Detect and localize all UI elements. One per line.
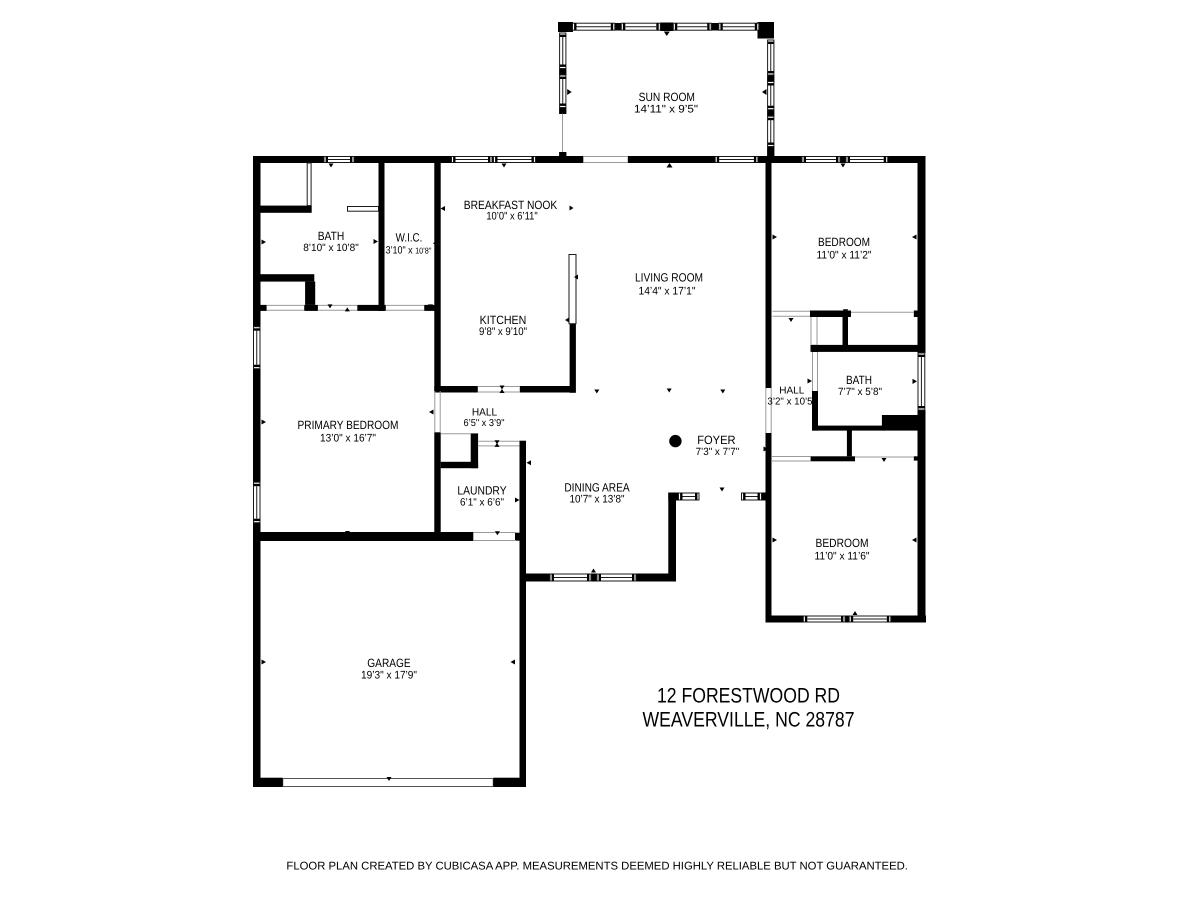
- svg-text:11’0" x 11’6": 11’0" x 11’6": [815, 551, 870, 563]
- svg-text:FOYER: FOYER: [697, 433, 736, 447]
- svg-text:3’2" x 10’5: 3’2" x 10’5: [767, 396, 813, 407]
- svg-text:19’3" x 17’9": 19’3" x 17’9": [361, 670, 417, 682]
- svg-text:10’7" x 13’8": 10’7" x 13’8": [570, 494, 625, 506]
- svg-text:3’10" x 10’8": 3’10" x 10’8": [386, 245, 432, 257]
- svg-text:LIVING ROOM: LIVING ROOM: [635, 271, 703, 285]
- svg-text:PRIMARY BEDROOM: PRIMARY BEDROOM: [298, 418, 399, 432]
- svg-text:7’3" x 7’7": 7’3" x 7’7": [696, 446, 740, 458]
- svg-text:14’11" x 9’5": 14’11" x 9’5": [634, 103, 698, 115]
- svg-text:LAUNDRY: LAUNDRY: [457, 484, 506, 498]
- svg-text:10’0" x 6’11": 10’0" x 6’11": [486, 211, 537, 223]
- svg-text:12 FORESTWOOD RD: 12 FORESTWOOD RD: [657, 685, 840, 708]
- svg-text:BATH: BATH: [846, 373, 872, 387]
- svg-text:GARAGE: GARAGE: [367, 656, 410, 670]
- svg-text:W.I.C.: W.I.C.: [396, 231, 423, 245]
- svg-text:11’0" x 11’2": 11’0" x 11’2": [817, 250, 872, 262]
- svg-text:SUN ROOM: SUN ROOM: [639, 90, 695, 104]
- svg-text:HALL: HALL: [472, 407, 497, 419]
- svg-text:9’8" x 9’10": 9’8" x 9’10": [479, 326, 527, 338]
- svg-text:6’5" x 3’9": 6’5" x 3’9": [464, 418, 505, 429]
- svg-text:FLOOR PLAN CREATED BY CUBICASA: FLOOR PLAN CREATED BY CUBICASA APP. MEAS…: [286, 861, 908, 873]
- svg-text:DINING AREA: DINING AREA: [564, 481, 629, 495]
- svg-text:7’7" x 5’8": 7’7" x 5’8": [838, 386, 882, 398]
- svg-text:HALL: HALL: [779, 386, 804, 397]
- svg-text:6’1" x 6’6": 6’1" x 6’6": [460, 497, 504, 509]
- svg-text:13’0" x 16’7": 13’0" x 16’7": [320, 433, 376, 445]
- svg-text:8’10" x 10’8": 8’10" x 10’8": [303, 242, 359, 254]
- svg-text:KITCHEN: KITCHEN: [480, 313, 527, 327]
- svg-text:14’4" x 17’1": 14’4" x 17’1": [639, 286, 696, 298]
- svg-text:BEDROOM: BEDROOM: [816, 536, 869, 550]
- svg-text:WEAVERVILLE, NC 28787: WEAVERVILLE, NC 28787: [643, 709, 855, 732]
- svg-text:BEDROOM: BEDROOM: [818, 235, 870, 249]
